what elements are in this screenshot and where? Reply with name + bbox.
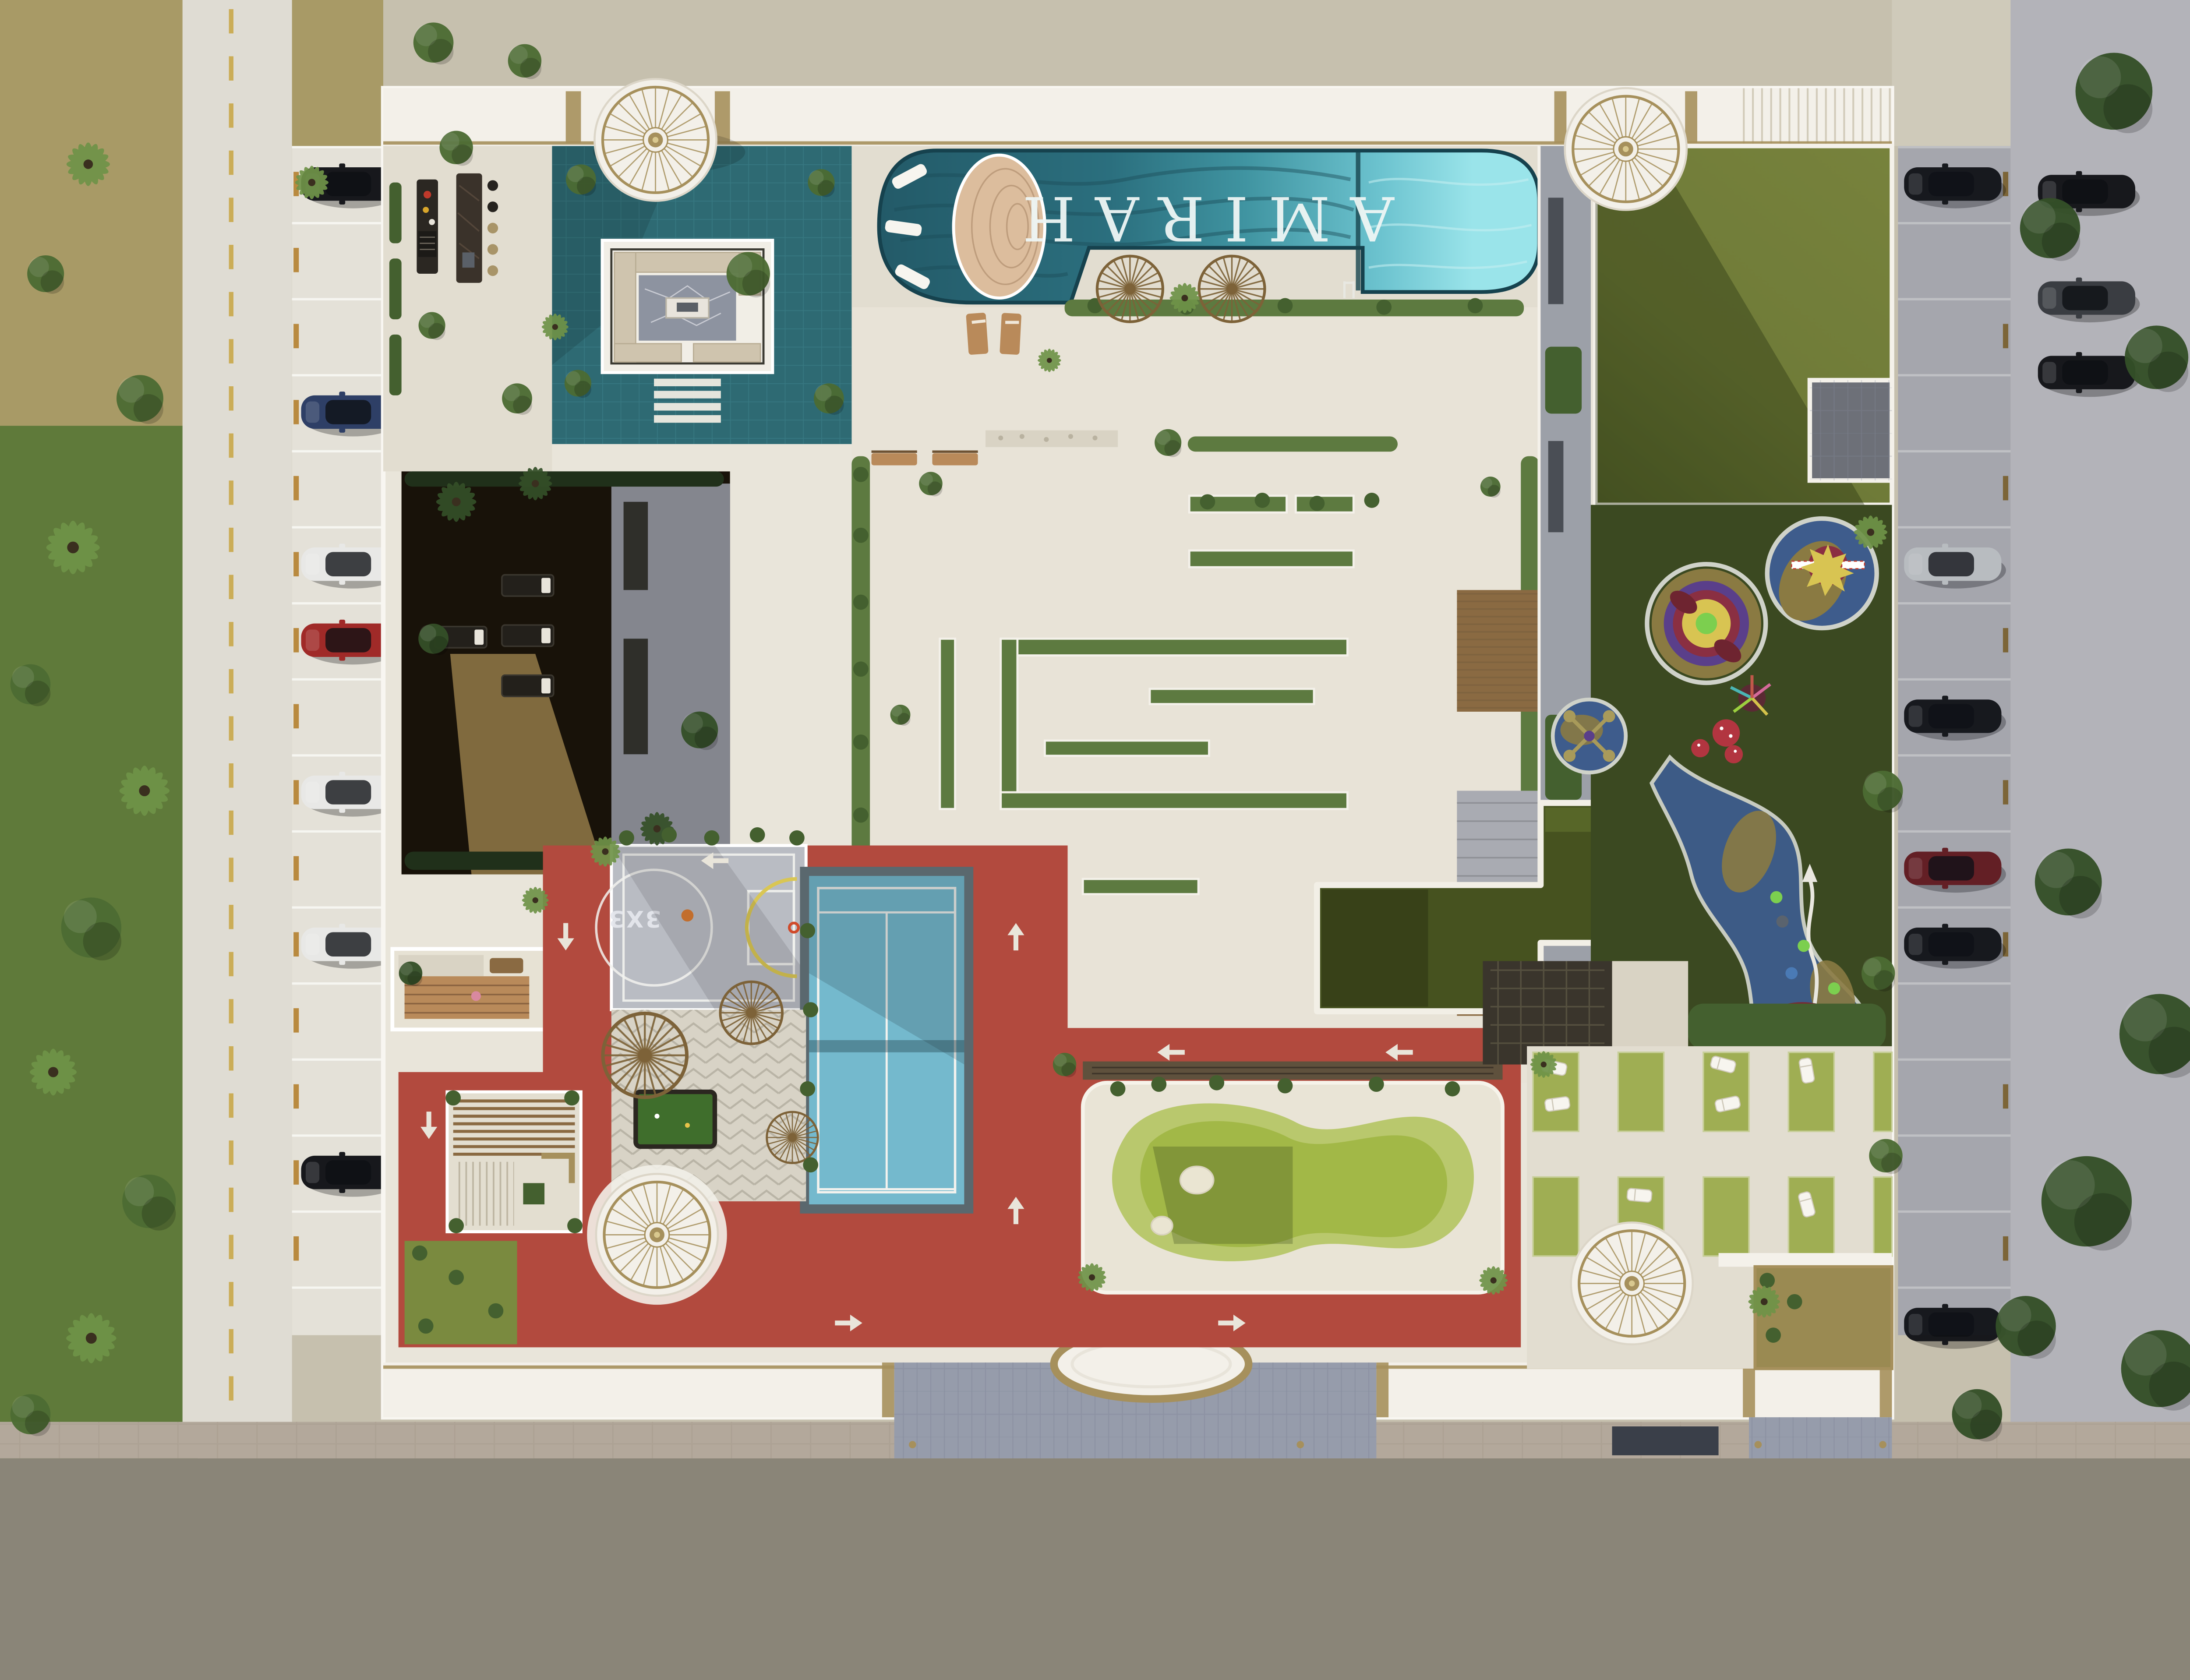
aerial-site-plan-render: AMIRAH: [0, 0, 2190, 1458]
person: [471, 991, 481, 1001]
timber-deck-garden: [392, 949, 546, 1030]
fan-shade-pergola: [720, 982, 782, 1044]
planter-row: [1188, 437, 1398, 452]
water-feature-bench: [1083, 1062, 1502, 1080]
louvered-pergola-roof: [1741, 88, 1892, 146]
dome-gazebo: [596, 1174, 718, 1295]
fan-shade-pergola: [603, 1013, 687, 1098]
wheel-stops: [293, 172, 299, 1260]
edge-planters: [389, 183, 402, 395]
parking-right: [1898, 146, 2010, 1349]
hedge-band: [1688, 1004, 1886, 1049]
fan-shade-pergola: [767, 1112, 818, 1163]
balcony-edge: [1719, 1253, 1892, 1267]
tan-terrace-court: [1755, 1267, 1892, 1369]
gravel-bed: [985, 431, 1118, 447]
bunker: [1180, 1166, 1213, 1194]
basketball-3x3-court: 3X3: [596, 846, 806, 1010]
dome-gazebo: [1571, 1222, 1693, 1344]
spinner-circle-playpad: [1553, 699, 1626, 773]
white-lounger: [1627, 1188, 1652, 1203]
white-lounger: [1544, 1096, 1570, 1112]
billiards-table: [636, 1092, 715, 1147]
entrance-mat: [1612, 1426, 1719, 1455]
pool-name-text: AMIRAH: [1003, 183, 1395, 254]
daybed: [502, 625, 554, 646]
padel-tennis-court: [800, 867, 973, 1214]
daybed: [502, 575, 554, 596]
lounger-terrace: [1527, 1046, 1892, 1369]
fan-shade-pergola: [1199, 256, 1265, 322]
green-shadow: [1153, 1147, 1293, 1244]
hedge-row: [405, 471, 724, 487]
leisure-deck-northwest: [383, 146, 851, 471]
dome-gazebo: [1565, 88, 1687, 210]
side-table: [490, 958, 523, 973]
shaded-lounge-garden: [402, 471, 730, 874]
fan-shade-pergola: [1097, 256, 1163, 322]
daybed: [502, 675, 554, 697]
concentric-circles-playpad: [1647, 564, 1766, 683]
putting-green: [1083, 1062, 1502, 1293]
timber-pergola-garden: [447, 1092, 581, 1232]
dome-gazebo: [594, 79, 716, 201]
street-west: [183, 0, 292, 1422]
bunker: [1151, 1217, 1173, 1235]
